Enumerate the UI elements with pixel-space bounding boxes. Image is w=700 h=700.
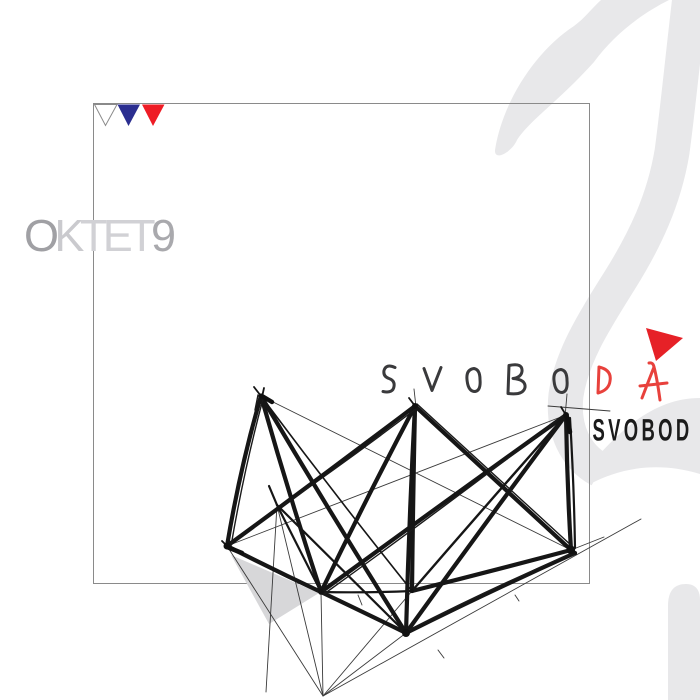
svg-text:OKTET9: OKTET9 <box>24 210 174 261</box>
svg-text:SVOBOD: SVOBOD <box>593 413 693 448</box>
